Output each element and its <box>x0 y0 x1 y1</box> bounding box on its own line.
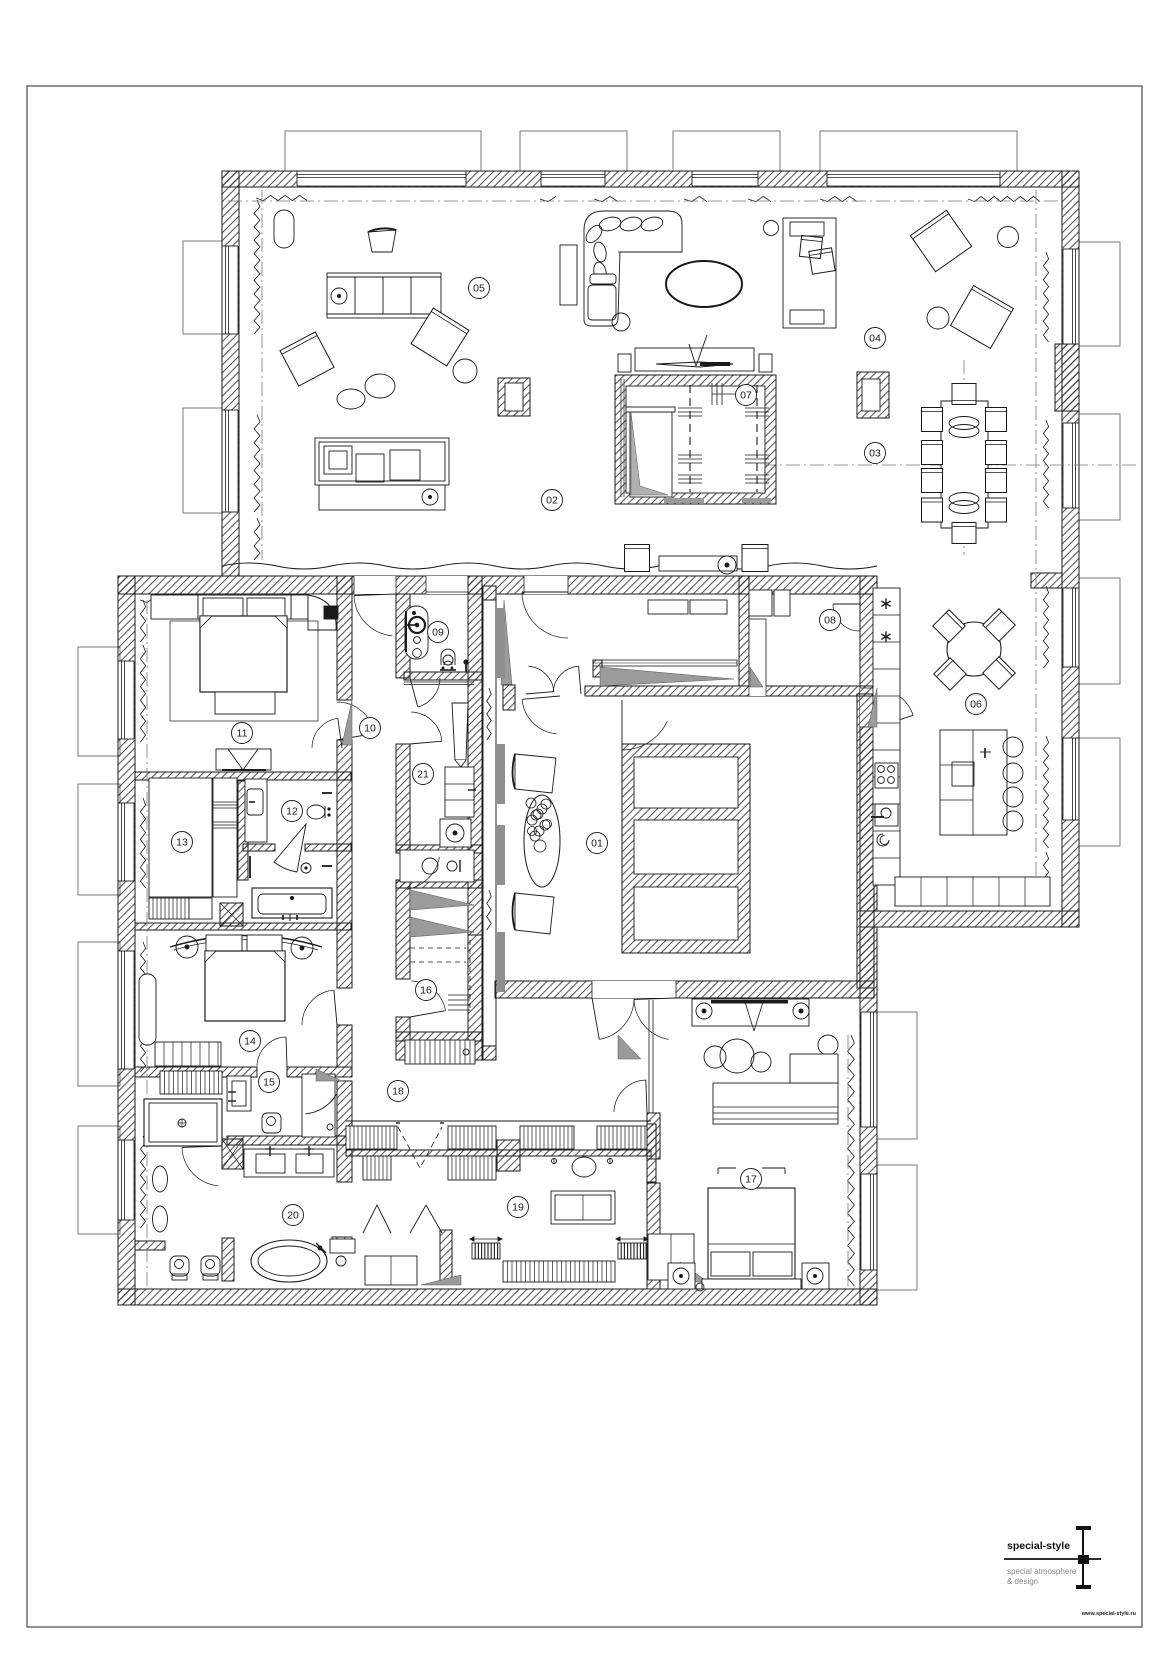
svg-text:20: 20 <box>287 1210 299 1222</box>
svg-text:17: 17 <box>745 1174 757 1186</box>
svg-text:16: 16 <box>420 985 432 997</box>
svg-text:14: 14 <box>244 1036 256 1048</box>
svg-text:13: 13 <box>176 837 188 849</box>
svg-text:& design: & design <box>1007 1577 1038 1586</box>
svg-text:05: 05 <box>473 283 485 295</box>
svg-text:10: 10 <box>364 723 376 735</box>
svg-text:07: 07 <box>740 390 752 402</box>
svg-text:21: 21 <box>417 769 429 781</box>
svg-text:∗: ∗ <box>879 594 893 613</box>
svg-text:01: 01 <box>591 838 603 850</box>
svg-text:15: 15 <box>263 1077 275 1089</box>
svg-text:03: 03 <box>869 448 881 460</box>
svg-text:12: 12 <box>286 806 298 818</box>
svg-text:special atmosphere: special atmosphere <box>1007 1567 1077 1576</box>
svg-text:www.special-style.ru: www.special-style.ru <box>1081 1611 1136 1617</box>
svg-text:04: 04 <box>869 333 881 345</box>
svg-text:02: 02 <box>546 495 558 507</box>
svg-text:18: 18 <box>392 1086 404 1098</box>
svg-text:special-style: special-style <box>1007 1540 1070 1552</box>
svg-text:19: 19 <box>512 1202 524 1214</box>
svg-text:∗: ∗ <box>879 627 893 646</box>
svg-text:08: 08 <box>824 615 836 627</box>
svg-text:11: 11 <box>237 728 248 740</box>
svg-text:09: 09 <box>432 627 444 639</box>
svg-text:06: 06 <box>970 699 982 711</box>
